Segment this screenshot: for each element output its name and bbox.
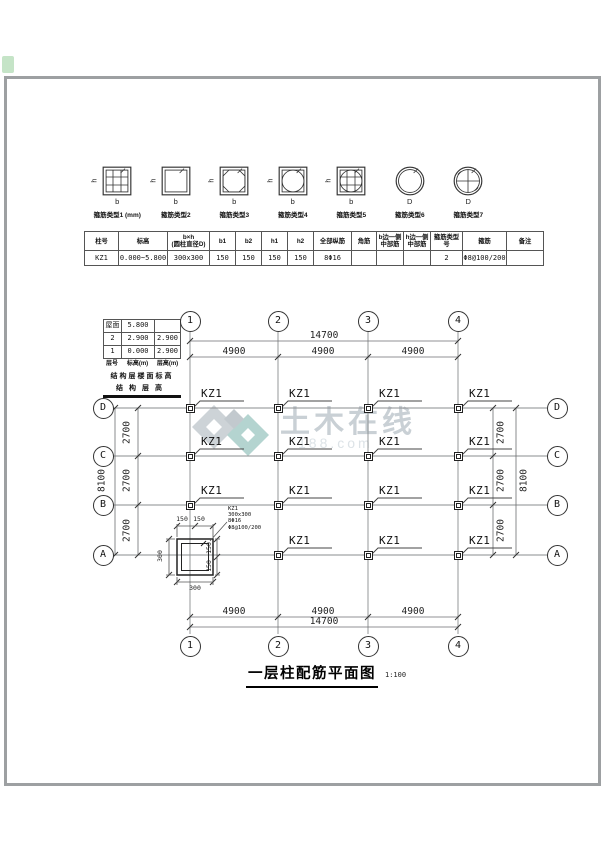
column-square-inner bbox=[276, 503, 281, 508]
dimension-label: 150 bbox=[188, 515, 210, 523]
column-square-inner bbox=[276, 454, 281, 459]
dimension-label: 14700 bbox=[299, 616, 349, 627]
dimension-label: 300 bbox=[184, 584, 206, 592]
axis-bubble: 2 bbox=[268, 311, 289, 332]
column-mark-text: KZ1 bbox=[289, 435, 310, 448]
column-mark-label: KZ1 bbox=[281, 486, 335, 505]
column-square bbox=[454, 501, 463, 510]
axis-bubble: 3 bbox=[358, 636, 379, 657]
column-square bbox=[186, 404, 195, 413]
column-square-inner bbox=[188, 406, 193, 411]
axis-bubble: C bbox=[547, 446, 568, 467]
dimension-label: 4900 bbox=[209, 606, 259, 617]
plan-lines bbox=[0, 0, 610, 861]
dimension-label: 4900 bbox=[388, 346, 438, 357]
dimension-label: 4900 bbox=[388, 606, 438, 617]
column-mark-text: KZ1 bbox=[379, 534, 400, 547]
column-square-inner bbox=[366, 503, 371, 508]
axis-bubble: A bbox=[93, 545, 114, 566]
column-square bbox=[364, 404, 373, 413]
column-mark-label: KZ1 bbox=[371, 437, 425, 456]
column-mark-label: KZ1 bbox=[461, 536, 515, 555]
column-mark-label: KZ1 bbox=[193, 486, 247, 505]
dimension-label: 8100 bbox=[519, 456, 530, 506]
dimension-label: 4900 bbox=[209, 346, 259, 357]
column-mark-label: KZ1 bbox=[371, 536, 425, 555]
axis-bubble: 3 bbox=[358, 311, 379, 332]
column-square bbox=[454, 551, 463, 560]
column-mark-text: KZ1 bbox=[289, 484, 310, 497]
column-square bbox=[186, 452, 195, 461]
column-square-inner bbox=[188, 454, 193, 459]
column-mark-label: KZ1 bbox=[193, 437, 247, 456]
column-square-inner bbox=[188, 503, 193, 508]
column-square bbox=[454, 452, 463, 461]
column-mark-label: KZ1 bbox=[461, 486, 515, 505]
column-mark-label: KZ1 bbox=[461, 437, 515, 456]
axis-bubble: 1 bbox=[180, 311, 201, 332]
column-square-inner bbox=[276, 406, 281, 411]
column-square-inner bbox=[276, 553, 281, 558]
column-square bbox=[364, 551, 373, 560]
column-square bbox=[364, 501, 373, 510]
column-square-inner bbox=[366, 553, 371, 558]
dimension-label: 2700 bbox=[122, 506, 133, 556]
column-square bbox=[274, 404, 283, 413]
column-square bbox=[274, 551, 283, 560]
axis-bubble: D bbox=[93, 398, 114, 419]
column-square-inner bbox=[456, 553, 461, 558]
drawing-canvas: 土木在线 188.com hb箍筋类型1 (mm)hb箍筋类型2hb箍筋类型3h… bbox=[0, 0, 610, 861]
column-square bbox=[274, 501, 283, 510]
column-square-inner bbox=[366, 406, 371, 411]
axis-bubble: B bbox=[547, 495, 568, 516]
dimension-label: 2700 bbox=[122, 456, 133, 506]
column-square bbox=[186, 501, 195, 510]
column-mark-label: KZ1 bbox=[281, 437, 335, 456]
column-mark-label: KZ1 bbox=[281, 389, 335, 408]
column-mark-label: KZ1 bbox=[193, 389, 247, 408]
column-square bbox=[454, 404, 463, 413]
column-square-inner bbox=[456, 454, 461, 459]
dimension-label: 4900 bbox=[298, 346, 348, 357]
dimension-label: 300 bbox=[156, 545, 164, 567]
column-mark-text: KZ1 bbox=[379, 387, 400, 400]
axis-bubble: 4 bbox=[448, 311, 469, 332]
dimension-label: 150 bbox=[205, 555, 213, 577]
column-mark-text: KZ1 bbox=[379, 435, 400, 448]
column-mark-text: KZ1 bbox=[201, 484, 222, 497]
dimension-label: 8100 bbox=[97, 456, 108, 506]
axis-bubble: 4 bbox=[448, 636, 469, 657]
column-mark-text: KZ1 bbox=[469, 534, 490, 547]
column-mark-text: KZ1 bbox=[289, 387, 310, 400]
dimension-label: 2700 bbox=[122, 408, 133, 458]
axis-bubble: A bbox=[547, 545, 568, 566]
column-mark-text: KZ1 bbox=[289, 534, 310, 547]
column-mark-label: KZ1 bbox=[371, 389, 425, 408]
column-mark-text: KZ1 bbox=[469, 435, 490, 448]
column-mark-text: KZ1 bbox=[201, 387, 222, 400]
column-mark-text: KZ1 bbox=[201, 435, 222, 448]
column-mark-text: KZ1 bbox=[379, 484, 400, 497]
column-square-inner bbox=[366, 454, 371, 459]
column-mark-text: KZ1 bbox=[469, 387, 490, 400]
column-square-inner bbox=[456, 503, 461, 508]
column-mark-label: KZ1 bbox=[281, 536, 335, 555]
axis-bubble: 1 bbox=[180, 636, 201, 657]
column-detail-callout: KZ1 300x300 8Φ16 Φ8@100/200 bbox=[228, 506, 261, 531]
column-mark-label: KZ1 bbox=[371, 486, 425, 505]
axis-bubble: 2 bbox=[268, 636, 289, 657]
column-square bbox=[364, 452, 373, 461]
column-mark-text: KZ1 bbox=[469, 484, 490, 497]
axis-bubble: D bbox=[547, 398, 568, 419]
column-mark-label: KZ1 bbox=[461, 389, 515, 408]
dimension-label: 14700 bbox=[299, 330, 349, 341]
column-square bbox=[274, 452, 283, 461]
column-square-inner bbox=[456, 406, 461, 411]
